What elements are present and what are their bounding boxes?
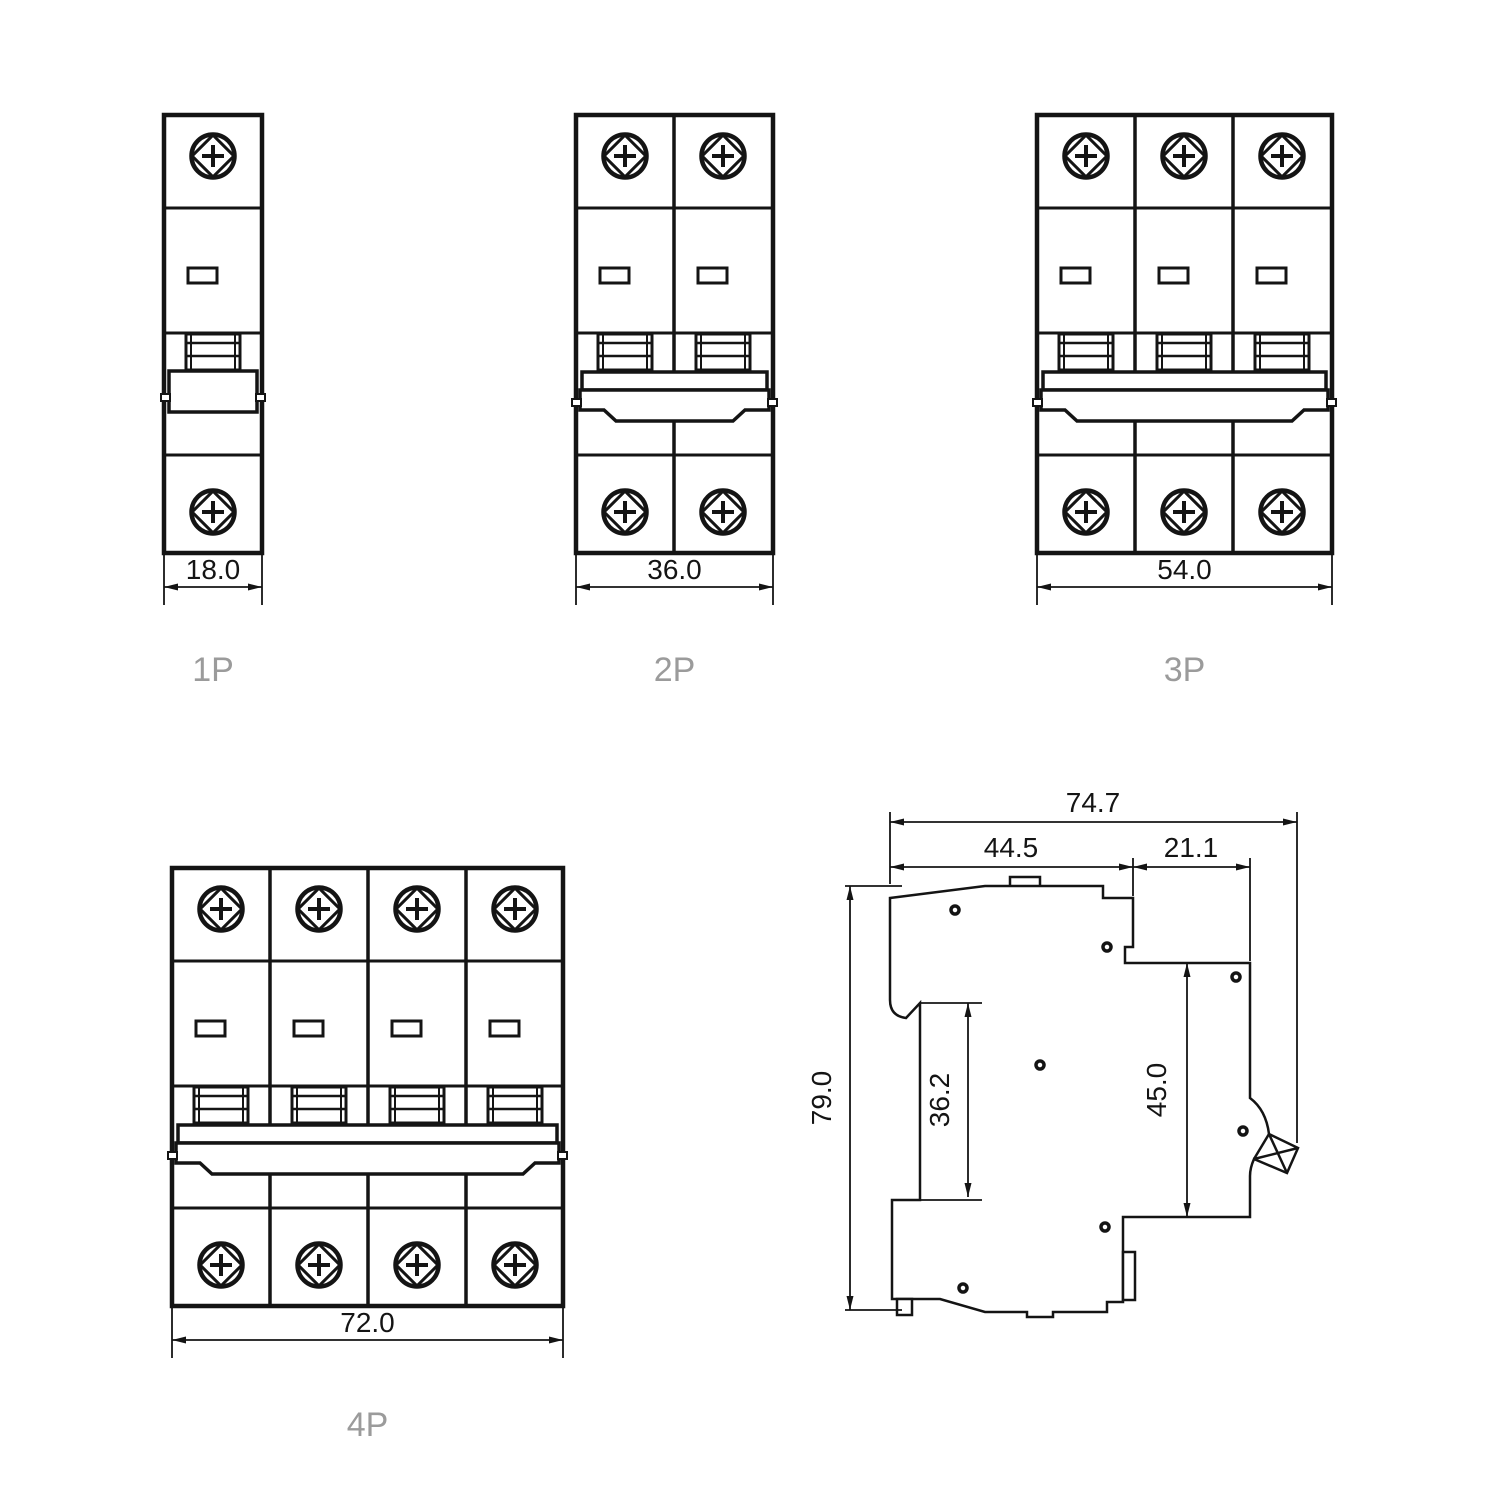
breaker-module	[466, 888, 564, 1287]
breaker-module	[1233, 135, 1331, 534]
pole-label-3p: 3P	[1164, 651, 1206, 689]
side-dim-rail-recess-height: 36.2	[892, 1003, 982, 1200]
toggle-handle	[168, 1125, 567, 1174]
front-view-3p: 54.0 3P	[1033, 115, 1336, 689]
breaker-module	[270, 888, 368, 1287]
front-view-4p: 72.0 4P	[168, 868, 567, 1444]
breaker-module	[674, 135, 772, 534]
mcb-dimension-drawing: 18.0 1P 36.0 2P	[0, 0, 1500, 1500]
toggle-handle	[161, 371, 265, 412]
breaker-module	[576, 135, 674, 534]
toggle-handle	[572, 372, 777, 421]
front-lower-lip	[1123, 1252, 1135, 1300]
dimension-value: 74.7	[1066, 787, 1121, 818]
width-dimension-1p: 18.0	[164, 553, 262, 605]
breaker-module	[164, 135, 262, 534]
side-dim-front-height: 45.0	[1141, 963, 1191, 1217]
dimension-value: 36.2	[924, 1073, 955, 1128]
side-dim-front-width: 21.1	[1133, 832, 1250, 961]
width-dimension-2p: 36.0	[576, 553, 773, 605]
pole-label-2p: 2P	[654, 651, 696, 689]
dimension-value: 18.0	[186, 554, 241, 585]
dimension-value: 72.0	[340, 1307, 395, 1338]
pole-label-4p: 4P	[347, 1406, 389, 1444]
dimension-value: 79.0	[806, 1071, 837, 1126]
dimension-value: 44.5	[984, 832, 1039, 863]
dimension-value: 36.0	[647, 554, 702, 585]
dimension-value: 21.1	[1164, 832, 1219, 863]
pole-label-1p: 1P	[192, 651, 234, 689]
front-view-2p: 36.0 2P	[572, 115, 777, 689]
dimension-value: 54.0	[1157, 554, 1212, 585]
breaker-module	[1135, 135, 1233, 534]
width-dimension-3p: 54.0	[1037, 553, 1332, 605]
dimension-value: 45.0	[1141, 1063, 1172, 1118]
breaker-module	[1037, 135, 1135, 534]
side-view: 74.7 44.5 21.1 79.0	[806, 787, 1298, 1317]
width-dimension-4p: 72.0	[172, 1306, 563, 1358]
breaker-module	[172, 888, 270, 1287]
toggle-handle	[1033, 372, 1336, 421]
bottom-clip-foot	[897, 1299, 912, 1315]
side-dim-height: 79.0	[806, 886, 902, 1310]
front-view-1p: 18.0 1P	[161, 115, 265, 689]
breaker-module	[368, 888, 466, 1287]
top-clip-tab	[1010, 877, 1040, 886]
